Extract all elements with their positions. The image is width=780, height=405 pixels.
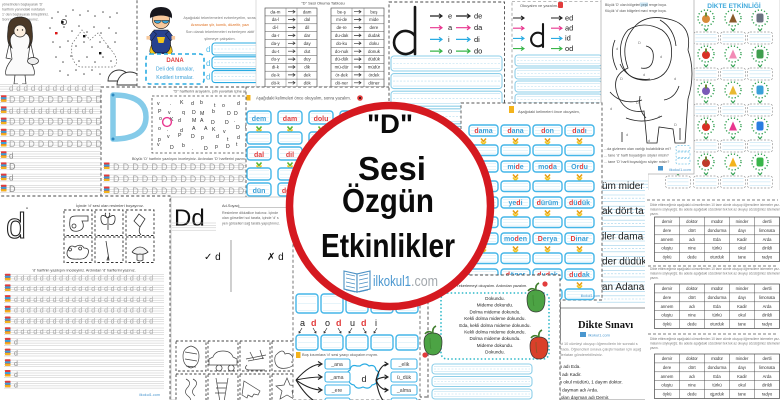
svg-text:dal: dal [254,152,264,159]
svg-text:dana: dana [507,128,523,135]
svg-text:Resimlere dikkatlice bakınız.: Resimlere dikkatlice bakınız. İçinde [222,210,278,215]
svg-text:dayı: dayı [738,228,746,233]
svg-text:A: A [200,118,204,124]
svg-text:da-l: da-l [272,17,279,22]
svg-text:a: a [300,318,305,328]
svg-text:İçinde 'd' sesi olan resimleri: İçinde 'd' sesi olan resimleri boyayınız… [76,203,144,208]
svg-text:dere: dere [663,295,672,300]
svg-text:o: o [325,318,330,328]
svg-text:Aşağıdaki tekerlemeleri ezberl: Aşağıdaki tekerlemeleri ezberleyelim, sı… [183,16,256,20]
svg-text:Boş kısımlara 'd' sesi yazıp o: Boş kısımlara 'd' sesi yazıp okuyalım mı… [302,352,378,357]
svg-text:v: v [157,142,160,148]
svg-text:Eda: Eda [713,304,721,309]
svg-text:dik: dik [304,65,310,70]
svg-text:demir: demir [662,286,673,291]
svg-text:D D D D D D D D D D D: D D D D D D D D D D D [9,117,112,127]
svg-text:Ordu: Ordu [571,164,588,171]
svg-text:.: . [192,146,193,152]
svg-text:q: q [182,110,185,116]
svg-text:öykü: öykü [663,392,673,397]
svg-text:du-y: du-y [271,57,280,62]
svg-text:D: D [234,111,238,117]
svg-text:ed: ed [565,13,573,22]
svg-text:dil: dil [286,152,294,159]
svg-text:ördek: ördek [368,73,380,78]
svg-text:Dokundu.: Dokundu. [485,296,505,301]
svg-text:dört: dört [688,295,696,300]
svg-text:dam: dam [283,116,297,123]
svg-text:Kekli dolma mideme dokundu.: Kekli dolma mideme dokundu. [464,316,526,321]
svg-text:Büyük 'D' olan bölgeleri yeşil: Büyük 'D' olan bölgeleri yeşil renge boy… [605,3,667,7]
svg-text:d: d [336,318,342,328]
svg-text:dört: dört [688,228,696,233]
svg-text:Arda: Arda [763,304,773,309]
svg-text:Eda: Eda [713,374,721,379]
svg-text:dudak: dudak [368,33,381,38]
svg-text:d: d [674,76,676,81]
svg-text:ın dayman adı Arda.: ın dayman adı Arda. [557,387,598,392]
svg-text:yazın.: yazın. [650,276,659,280]
svg-text:A: A [192,126,196,132]
svg-text:D: D [674,122,677,127]
svg-text:d: d [311,318,317,328]
svg-text:yen görselleri sağ tarafa yapı: yen görselleri sağ tarafa yapıştırınız. [222,221,280,225]
svg-text:d: d [660,54,662,59]
svg-text:dayı: dayı [738,365,746,370]
svg-text:d: d [191,101,194,107]
svg-text:radyo: radyo [762,392,773,397]
svg-text:d: d [237,101,240,107]
svg-text:Ad-Soyad:: Ad-Soyad: [222,204,240,208]
svg-text:dök: dök [304,80,312,85]
svg-text:d: d [178,118,181,124]
svg-text:D: D [192,110,196,116]
svg-text:moda: moda [538,164,557,171]
svg-text:D: D [638,40,641,45]
svg-text:.: . [170,101,171,107]
svg-text:"D": "D" [367,109,413,139]
svg-text:_ere: _ere [331,388,342,394]
svg-text:minder: minder [736,356,749,361]
svg-text:doku: doku [369,41,379,46]
svg-text:Büyük 'D' harfinin yazılışını: Büyük 'D' harfinin yazılışını inceleyini… [132,157,248,161]
svg-text:adı: adı [689,374,695,379]
svg-text:do: do [474,47,482,56]
svg-text:di-k: di-k [272,65,280,70]
svg-text:dolu: dolu [314,116,329,123]
svg-text:*: * [712,395,714,400]
svg-text:dal: dal [304,17,310,22]
svg-text:demir: demir [662,219,673,224]
svg-text:ım adı Eda.: ım adı Eda. [557,364,581,369]
svg-text:der düdük: der düdük [602,257,647,268]
svg-text:_alma: _alma [396,388,411,394]
svg-text:da-r: da-r [271,33,279,38]
svg-text:don: don [541,128,554,135]
svg-text:di-l: di-l [272,25,278,30]
svg-text:ilkokul1.com: ilkokul1.com [581,294,600,298]
svg-text:du-t: du-t [272,49,280,54]
svg-text:d d d d d d d d d d d d d d d: d d d d d d d d d d d d d d d d d d d d … [14,318,153,325]
svg-text:day: day [304,41,312,46]
svg-text:Dikte ettireceğimiz aşağıdaki: Dikte ettireceğimiz aşağıdaki cümcellerd… [650,337,780,341]
svg-text:D: D [170,145,174,151]
svg-text:o: o [159,116,162,122]
svg-text:limonata: limonata [759,228,775,233]
svg-text:A: A [204,126,208,132]
svg-text:Eda, kekli dolma mideme dokund: Eda, kekli dolma mideme dokundu. [459,323,531,328]
svg-text:d d d d d d d d d d d d d d d: d d d d d d d d d d d d d d d d d d d d … [14,276,153,283]
svg-text:Eda: Eda [713,237,721,242]
svg-text:mü-dür: mü-dür [335,65,349,70]
svg-text:D: D [226,144,230,150]
svg-text:d: d [14,383,21,390]
svg-text:o: o [222,103,225,109]
svg-text:Aşağıdaki kelimeleri önce okuy: Aşağıdaki kelimeleri önce okuyalım, [518,109,580,114]
svg-text:D D D D D D D D D D D: D D D D D D D D D D D [9,94,112,104]
svg-text:öykü: öykü [663,255,673,260]
svg-text:d d d d d d d d d d d d: d d d d d d d d d d d d [9,107,94,116]
svg-text:D: D [236,125,240,131]
svg-text:✗ d: ✗ d [267,252,284,263]
svg-text:doktor: doktor [686,219,698,224]
svg-text:dut: dut [304,49,311,54]
svg-text:b: b [182,143,185,149]
svg-text:...da gizlenen olan varlığı bu: ...da gizlenen olan varlığı bulabildiniz… [604,147,671,151]
svg-text:d: d [361,374,366,384]
svg-text:radyo: radyo [762,322,773,327]
svg-text:annem: annem [661,237,674,242]
svg-text:e: e [448,12,452,21]
svg-text:be-ş: be-ş [337,9,346,14]
svg-text:müdür: müdür [711,356,723,361]
svg-text:harfinin yanındaki noktaları: harfinin yanındaki noktaları [2,8,45,12]
svg-text:od: od [565,44,573,53]
svg-text:D: D [227,111,231,117]
svg-text:dün: dün [253,188,266,195]
svg-text:Okuyalım ve yazalım.: Okuyalım ve yazalım. [520,3,558,8]
svg-text:Son olarak tekerlemeleri ezber: Son olarak tekerlemeleri ezberleyen akti… [186,30,256,34]
svg-text:dertli: dertli [762,286,771,291]
svg-text:Arda: Arda [763,237,773,242]
svg-text:malarını söyleyeğiz. Bu adede: malarını söyleyeğiz. Bu adede aşağıdaki … [650,341,780,345]
svg-text:müdür: müdür [711,219,723,224]
svg-text:dar: dar [304,33,311,38]
svg-text:de-k: de-k [271,73,280,78]
svg-text:Kedileri tırmalar.: Kedileri tırmalar. [156,75,193,81]
svg-text:Özgün: Özgün [342,182,434,219]
svg-text:yazın.: yazın. [650,212,659,216]
svg-text:dirildi: dirildi [762,246,772,251]
svg-text:yedi: yedi [508,200,522,207]
svg-text:minder: minder [736,219,749,224]
svg-text:do-nuk: do-nuk [335,49,349,54]
svg-text:M: M [200,111,204,117]
svg-text:Dokundu.: Dokundu. [485,350,505,355]
svg-text:oluştu: oluştu [661,246,673,251]
svg-text:dere: dere [663,228,672,233]
svg-text:ilkokul1.com: ilkokul1.com [669,167,692,172]
svg-text:yazın.: yazın. [650,346,659,350]
svg-text:d: d [216,134,219,140]
svg-text:limonata: limonata [759,295,775,300]
svg-text:u: u [350,318,355,328]
svg-text:oluştu: oluştu [661,313,673,318]
svg-text:dayı: dayı [738,295,746,300]
svg-text:Arda: Arda [763,374,773,379]
svg-text:malarını söyleyeğiz. Bu adede: malarını söyleyeğiz. Bu adede aşağıdaki … [650,271,780,275]
svg-text:d: d [648,138,650,143]
svg-text:Tekerlemeyi okuyalım. Ardından: Tekerlemeyi okuyalım. Ardından yazalım. [457,283,528,288]
svg-text:"D" Sesi Okuma Tablosu: "D" Sesi Okuma Tablosu [301,1,344,6]
svg-text:üm mider: üm mider [602,181,644,192]
svg-text:D: D [636,100,639,105]
svg-text:d d d d d d d d d d d d d d d: d d d d d d d d d d d d d d d d d d d d … [14,297,153,304]
svg-text:dirildi: dirildi [762,313,772,318]
svg-text:annem: annem [661,374,674,379]
svg-text:rtada. Öğrencileri sınava çalı: rtada. Öğrencileri sınava çalıştırmadan … [560,348,641,352]
svg-text:P: P [178,133,182,139]
svg-text:Kadir: Kadir [737,374,747,379]
svg-text:Mideme dokundu.: Mideme dokundu. [477,343,514,348]
svg-text:DANA: DANA [166,58,184,64]
svg-text:duy: duy [304,57,312,62]
svg-text:v: v [223,129,226,135]
svg-text:st 10 cümleyi okuyup öğrencile: st 10 cümleyi okuyup öğrencilerin bir so… [560,342,638,346]
svg-text:dört: dört [688,365,696,370]
svg-text:malarını söyleyeğiz. Bu adede: malarını söyleyeğiz. Bu adede aşağıdaki … [650,207,780,211]
svg-text:... tane 'd' harfi boyadığını: ... tane 'd' harfi boyadığını söyler mis… [604,154,669,158]
svg-text:da-y: da-y [271,41,280,46]
svg-text:id: id [565,34,571,43]
svg-text:du-dak: du-dak [335,33,349,38]
svg-text:dede: dede [687,255,697,260]
svg-text:okul: okul [738,313,746,318]
svg-text:o: o [448,47,452,56]
svg-text:beş: beş [370,9,378,14]
svg-text:limonata: limonata [759,365,775,370]
svg-text:ın adı Kadir.: ın adı Kadir. [557,372,582,377]
svg-text:okul: okul [738,383,746,388]
svg-text:dede: dede [687,392,697,397]
svg-text:ilkokul1.com: ilkokul1.com [139,393,160,397]
svg-text:dü-dük: dü-dük [335,57,349,62]
svg-text:ak dört ta: ak dört ta [602,206,644,217]
svg-text:döner: döner [368,80,380,85]
svg-text:d: d [658,114,660,119]
svg-text:d: d [610,106,612,111]
svg-text:d: d [14,372,21,379]
svg-text:1' den başlayarak birleştirini: 1' den başlayarak birleştiriniz. [2,13,49,17]
svg-text:d: d [237,135,240,141]
svg-text:moden: moden [504,236,527,243]
svg-text:dö-ner: dö-ner [335,80,348,85]
svg-text:Derya: Derya [538,236,558,243]
svg-text:oturduk: oturduk [710,255,725,260]
svg-text:dertli: dertli [762,356,771,361]
svg-text:dede: dede [687,322,697,327]
svg-text:_elik: _elik [398,362,410,368]
svg-text:DİKTE ETKİNLİĞİ: DİKTE ETKİNLİĞİ [707,1,761,10]
svg-text:adı: adı [689,304,695,309]
svg-text:düdük: düdük [368,57,381,62]
svg-text:dertli: dertli [762,219,771,224]
svg-text:.: . [167,127,168,133]
svg-text:d: d [14,361,21,368]
svg-text:✓ d: ✓ d [204,252,221,263]
svg-text:v: v [157,101,160,107]
svg-text:müdür: müdür [711,286,723,291]
svg-text:Dolma mideme dokundu.: Dolma mideme dokundu. [469,309,520,314]
svg-text:de: de [474,12,482,21]
svg-text:Kadir: Kadir [737,304,747,309]
svg-text:türkü: türkü [712,246,722,251]
svg-text:doktor: doktor [686,286,698,291]
svg-text:dem: dem [252,116,266,123]
svg-text:M: M [192,118,196,124]
svg-text:mide: mide [369,17,379,22]
svg-text:D: D [204,146,208,152]
svg-text:b: b [212,109,215,115]
svg-text:D: D [191,134,195,140]
svg-text:dudak: dudak [569,272,590,279]
svg-text:ilkokul1: ilkokul1 [373,274,411,290]
svg-text:dondurma: dondurma [708,365,728,370]
svg-text:ilerlatan gönderebilirsiniz.: ilerlatan gönderebilirsiniz. [560,353,603,357]
svg-text:Dikte Sınavı: Dikte Sınavı [578,320,633,331]
svg-text:dö-k: dö-k [271,80,280,85]
svg-text:d d d d d d d d d d d d d d d: d d d d d d d d d d d d d d d d d d d d … [14,286,153,293]
svg-text:d: d [206,59,210,68]
svg-text:dil: dil [305,25,309,30]
svg-text:da: da [474,23,483,32]
svg-text:v: v [168,110,171,116]
svg-text:Mideme dokundu.: Mideme dokundu. [477,303,514,308]
svg-text:ör-dek: ör-dek [335,73,348,78]
svg-text:K: K [212,127,216,133]
svg-text:d d d d d d d d d d d d: d d d d d d d d d d d d [9,84,94,93]
svg-text:D: D [9,162,16,172]
svg-text:.com: .com [411,274,438,290]
svg-text:d d d d d d d d d d d d d d d: d d d d d d d d d d d d d d d d d d d d … [14,308,153,315]
svg-text:oturduk: oturduk [710,322,725,327]
svg-text:adı: adı [689,237,695,242]
svg-text:dam: dam [303,9,312,14]
svg-text:Dikte ettireceğimiz aşağıdaki: Dikte ettireceğimiz aşağıdaki cümcellerd… [650,203,780,207]
svg-text:D D D D D D D D D D D: D D D D D D D D D D D [9,128,112,138]
svg-text:minder: minder [736,286,749,291]
svg-text:yönetinden başlayarak 'D': yönetinden başlayarak 'D' [2,3,43,7]
svg-text:tane: tane [738,255,747,260]
svg-text:D: D [211,120,215,126]
svg-text:Kadir: Kadir [737,237,747,242]
svg-text:"D" harflerini arayalım, şıtlı: "D" harflerini arayalım, şıtlı yuvarlak … [173,90,247,94]
svg-text:nine: nine [688,313,697,318]
svg-text:doktor: doktor [686,356,698,361]
svg-text:ad: ad [565,24,573,33]
svg-text:ü_dük: ü_dük [397,375,412,381]
svg-text:di: di [474,35,480,44]
svg-text:d: d [14,340,21,347]
svg-text:da-m: da-m [270,9,280,14]
svg-text:Dolma mideme dokundu.: Dolma mideme dokundu. [469,336,520,341]
svg-text:dek: dek [304,73,312,78]
svg-text:d: d [9,151,13,160]
svg-text:radyo: radyo [762,255,773,260]
svg-text:de-re: de-re [336,25,347,30]
svg-text:": " [26,208,28,214]
svg-text:tane: tane [738,322,747,327]
svg-text:olan görselleri sol tarafa, iç: olan görselleri sol tarafa, içinde 'd' s [222,216,279,220]
svg-text:d: d [361,318,367,328]
svg-text:d: d [626,132,628,137]
svg-text:... tane 'D' harfi boyadığını: ... tane 'D' harfi boyadığını söyler mis… [604,160,669,164]
svg-text:do-ku: do-ku [336,41,348,46]
svg-text:iler dama: iler dama [602,231,644,242]
svg-text:D: D [9,184,16,194]
svg-text:dondurma: dondurma [708,228,728,233]
svg-text:n olan dayman adı Demir.: n olan dayman adı Demir. [557,395,609,400]
svg-text:Aşağıdaki kelimeleri önce okuy: Aşağıdaki kelimeleri önce okuyalım, sonr… [256,96,351,101]
svg-text:d: d [643,72,645,77]
svg-text:d d d d d d d d d d d d d d d: d d d d d d d d d d d d d d d d d d d d … [14,329,153,336]
svg-text:oluştu: oluştu [661,383,673,388]
svg-text:D: D [225,120,229,126]
svg-text:_ama: _ama [330,375,344,381]
svg-text:D: D [620,76,623,81]
svg-text:_ana: _ana [330,362,343,368]
svg-text:dadı: dadı [572,128,586,135]
svg-text:türkü: türkü [712,313,722,318]
svg-text:annem: annem [661,304,674,309]
svg-text:dirildi: dirildi [762,383,772,388]
svg-text:mi-de: mi-de [336,17,348,22]
svg-text:D D D D D D D D D D D: D D D D D D D D D D D [9,139,112,149]
svg-text:d: d [9,174,13,183]
svg-text:okul: okul [738,246,746,251]
svg-text:d: d [206,45,210,54]
svg-text:dere: dere [663,365,672,370]
svg-text:öykü: öykü [663,322,673,327]
svg-text:Küçük 'd' olan bölgeleri mavi: Küçük 'd' olan bölgeleri mavi renge boya… [605,9,667,13]
svg-text:düdük: düdük [569,200,590,207]
svg-text:dere: dere [370,25,379,30]
svg-text:şiirmeye çalışalım.: şiirmeye çalışalım. [204,37,235,41]
svg-text:b: b [200,100,203,106]
svg-text:d: d [14,350,21,357]
svg-text:'d' harfinin yazılışını incele: 'd' harfinin yazılışını inceleyiniz. Ard… [32,269,135,273]
svg-text:Dikte ettireceğimiz aşağıdaki: Dikte ettireceğimiz aşağıdaki cümcellerd… [650,267,780,271]
svg-text:nine: nine [688,246,697,251]
svg-text:dondurma: dondurma [708,295,728,300]
svg-text:p: p [215,144,218,150]
svg-text:tane: tane [738,392,747,397]
svg-text:Dinar: Dinar [571,236,589,243]
svg-text:i: i [375,318,377,328]
svg-text:.: . [234,118,235,124]
svg-text:p: p [201,135,204,141]
svg-text:d: d [206,73,210,82]
svg-text:v: v [167,134,170,140]
svg-text:Aranızdan şiir, komik, düzelti: Aranızdan şiir, komik, düzeltir, yazı [191,23,249,27]
svg-text:demir: demir [662,356,673,361]
svg-text:mide: mide [507,164,523,171]
svg-text:dama: dama [474,128,492,135]
svg-text:d: d [616,46,618,51]
svg-text:dürüm: dürüm [537,200,559,207]
svg-text:Deli deli danalar,: Deli deli danalar, [156,67,194,73]
svg-text:Etkinlikler: Etkinlikler [321,227,455,264]
